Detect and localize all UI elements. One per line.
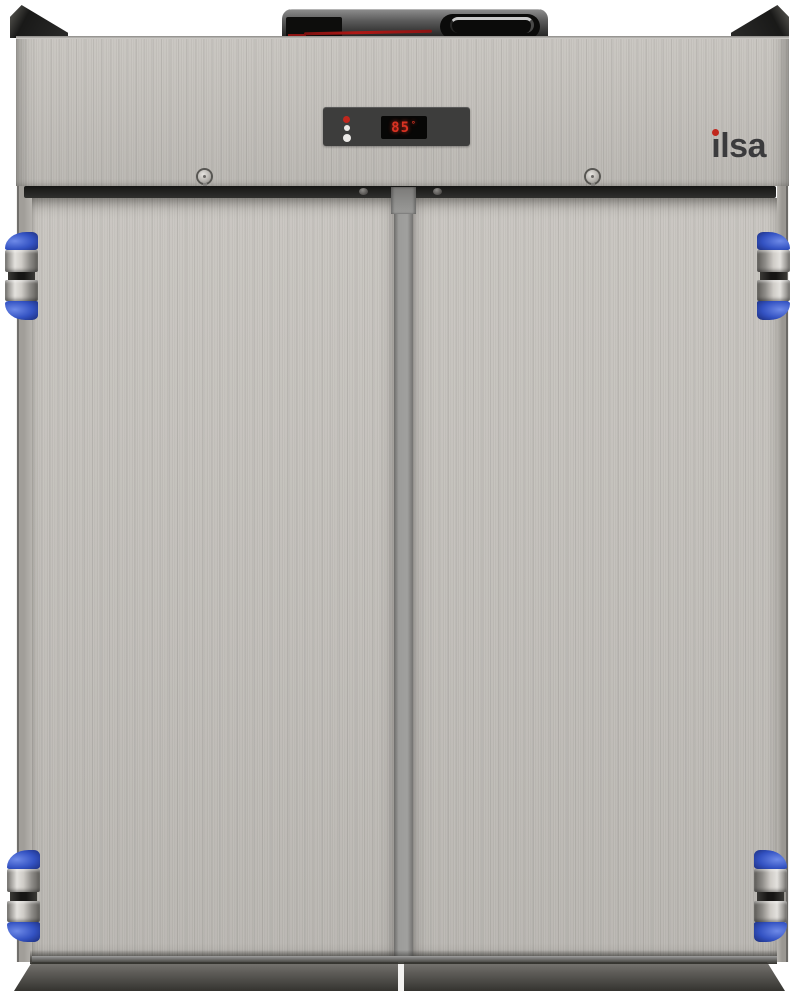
roof-corner-post-left <box>10 5 68 38</box>
temperature-value: 85 <box>391 120 410 136</box>
hinge-slot <box>757 892 784 900</box>
rooftop-condensing-unit <box>282 9 548 39</box>
product-image-stage: 85° ılsa <box>0 0 799 1000</box>
door-right <box>413 198 777 956</box>
hinge-barrel <box>5 250 38 272</box>
door-left <box>32 198 394 956</box>
hinge-blue-cap-top <box>5 232 38 250</box>
hinge-blue-cap-bottom <box>5 301 38 320</box>
hinge-slot <box>760 272 787 280</box>
header-screw-right <box>586 170 599 183</box>
ilsa-i-indicator-dot-icon <box>343 116 350 123</box>
hinge-barrel <box>754 869 787 892</box>
hinge-barrel <box>754 901 787 922</box>
degree-mark: ° <box>411 120 417 129</box>
under-door-shadow <box>30 950 777 964</box>
hinge-slot <box>10 892 37 900</box>
hinge-barrel <box>757 280 790 300</box>
temperature-display: 85° <box>381 116 427 139</box>
center-mullion <box>394 198 413 956</box>
hinge-bottom-left <box>7 850 40 942</box>
header-panel: 85° ılsa <box>16 36 789 186</box>
hinge-barrel <box>7 901 40 922</box>
hinge-barrel <box>757 250 790 272</box>
hinge-bottom-right <box>754 850 787 942</box>
roof-corner-post-right <box>731 5 789 38</box>
plinth-center-gap <box>398 962 404 991</box>
hinge-blue-cap-bottom <box>757 301 790 320</box>
hinge-barrel <box>5 280 38 300</box>
band-screw-right <box>433 188 442 195</box>
hinge-blue-cap-bottom <box>7 922 40 942</box>
hinge-top-left <box>5 232 38 320</box>
brand-logo: ılsa <box>711 129 766 163</box>
hinge-blue-cap-top <box>754 850 787 869</box>
hinge-blue-cap-top <box>757 232 790 250</box>
hinge-blue-cap-bottom <box>754 922 787 942</box>
hinge-barrel <box>7 869 40 892</box>
hinge-blue-cap-top <box>7 850 40 869</box>
brand-logo-rest: lsa <box>720 127 766 165</box>
band-screw-left <box>359 188 368 195</box>
hinge-slot <box>8 272 35 280</box>
ilsa-i-indicator-icon <box>342 125 351 143</box>
hinge-top-right <box>757 232 790 320</box>
base-plinth <box>14 962 785 991</box>
temperature-control-panel: 85° <box>323 107 470 146</box>
center-mullion-tab <box>391 187 416 214</box>
header-screw-left <box>198 170 211 183</box>
